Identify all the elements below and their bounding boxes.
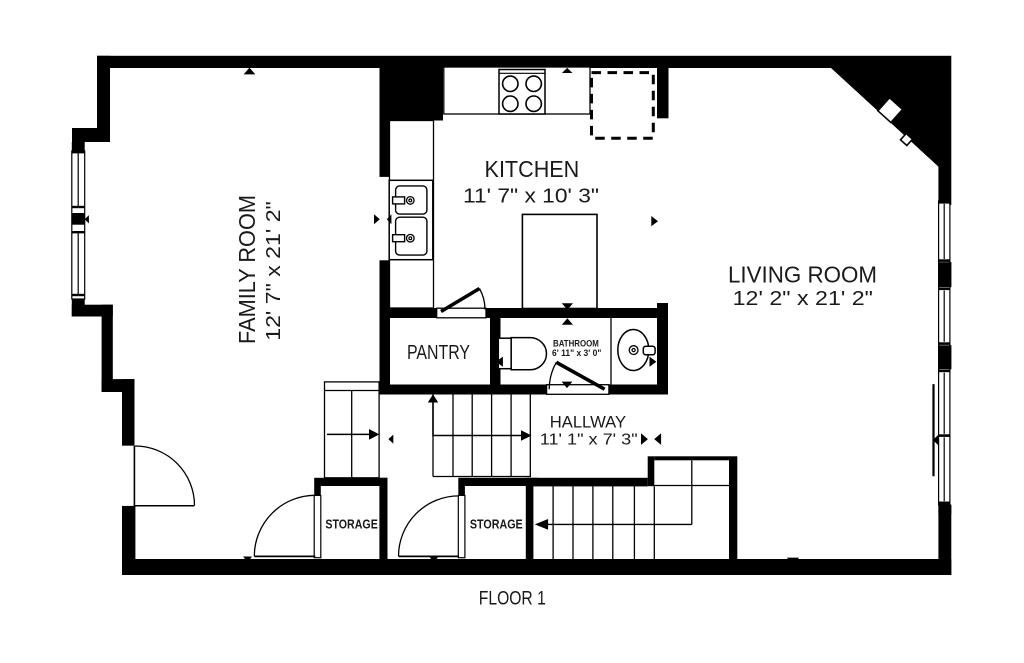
- svg-text:FLOOR 1: FLOOR 1: [479, 589, 546, 610]
- svg-text:KITCHEN: KITCHEN: [485, 156, 580, 182]
- svg-text:STORAGE: STORAGE: [325, 518, 377, 532]
- svg-text:12' 7" x 21' 2": 12' 7" x 21' 2": [263, 201, 285, 341]
- svg-text:LIVING ROOM: LIVING ROOM: [728, 261, 877, 287]
- svg-text:11' 7" x 10' 3": 11' 7" x 10' 3": [463, 185, 599, 207]
- svg-text:FAMILY ROOM: FAMILY ROOM: [234, 195, 260, 344]
- svg-text:HALLWAY: HALLWAY: [550, 414, 627, 432]
- svg-text:STORAGE: STORAGE: [470, 517, 523, 531]
- svg-text:PANTRY: PANTRY: [407, 341, 470, 364]
- svg-text:12' 2" x 21' 2": 12' 2" x 21' 2": [733, 288, 873, 310]
- svg-text:6' 11" x 3' 0": 6' 11" x 3' 0": [552, 348, 601, 358]
- svg-text:11' 1" x 7' 3": 11' 1" x 7' 3": [540, 432, 638, 449]
